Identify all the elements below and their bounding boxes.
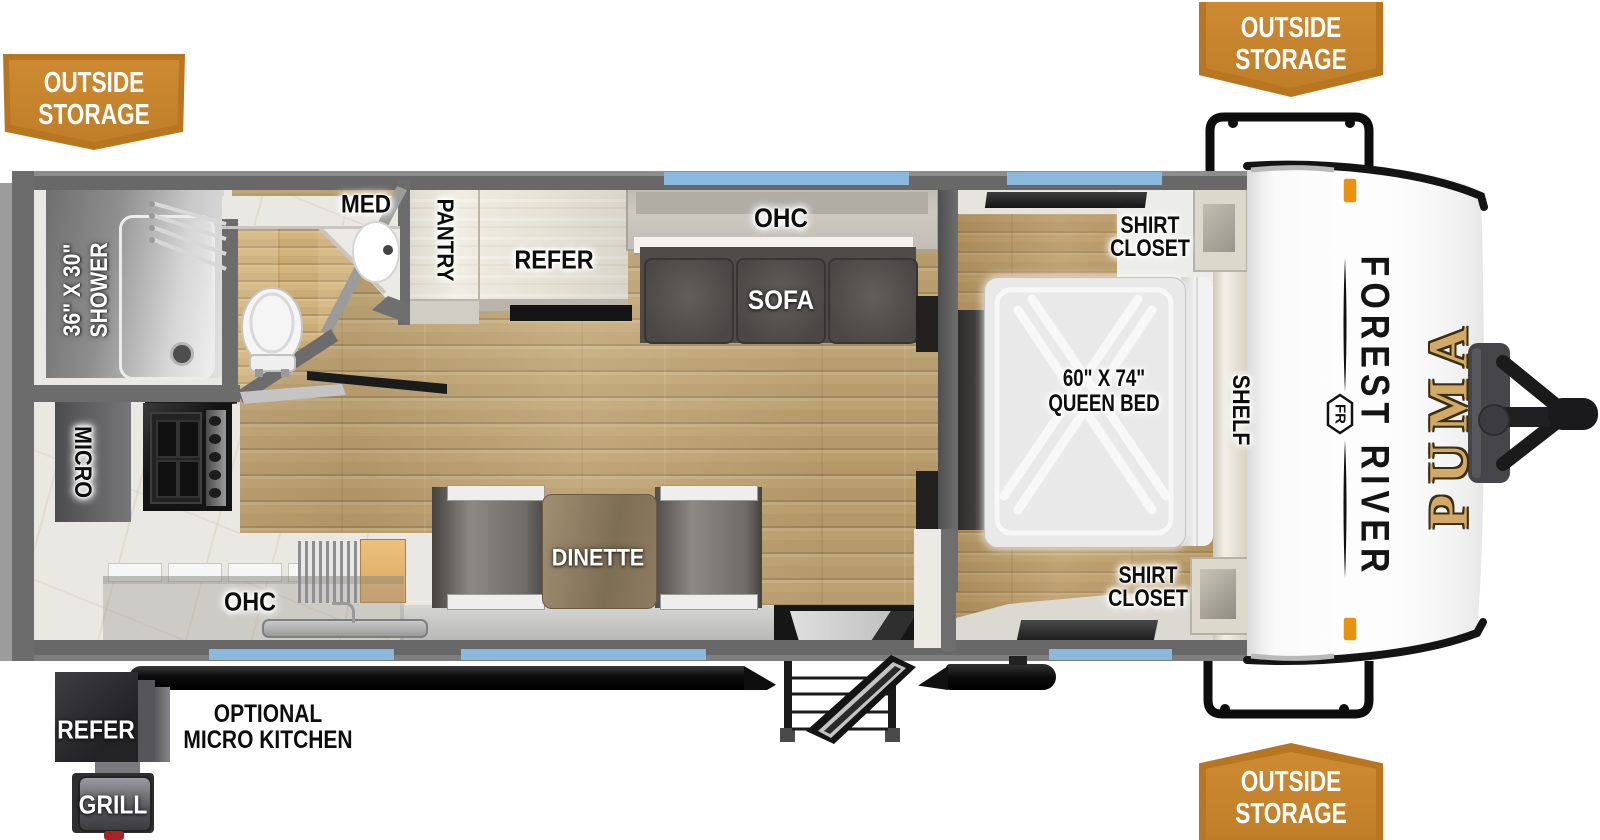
svg-text:FR: FR	[1332, 404, 1349, 424]
